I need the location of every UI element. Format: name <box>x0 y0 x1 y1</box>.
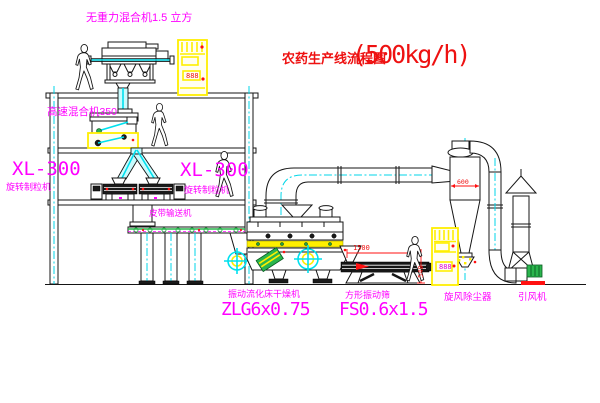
cabinet-1-display: 888 <box>186 73 199 80</box>
page-title-capacity: (500kg/h) <box>352 42 469 67</box>
mixer-drive-guard <box>88 133 138 148</box>
flow-diagram-canvas: 无重力混合机1.5 立方 农药生产线流程图 (500kg/h) 高速混合机350… <box>0 0 600 403</box>
label-dryer-name: 振动流化床干燥机 <box>228 290 300 299</box>
label-high-speed-mixer: 高速混合机350 <box>47 107 117 118</box>
worker-figure-1 <box>76 44 93 89</box>
label-granulator-left-model: XL-300 <box>12 160 81 179</box>
fan-base <box>521 281 545 285</box>
worker-figure-2 <box>152 103 168 146</box>
dimension-cyclone-diameter: 600 <box>457 179 469 186</box>
belt-conveyor <box>128 227 252 284</box>
cabinet-2-display: 888 <box>439 264 452 271</box>
dryer-feet <box>269 270 332 283</box>
duct-reducer <box>432 166 450 183</box>
dimension-screen-length: 1500 <box>353 245 370 252</box>
granulator-right <box>139 178 185 200</box>
control-cabinet-1 <box>178 40 207 95</box>
label-granulator-right-name: 旋转制粒机 <box>184 186 229 195</box>
fan-motor <box>527 265 542 277</box>
conveyor-legs <box>139 233 203 284</box>
label-fan: 引风机 <box>518 293 547 303</box>
control-cabinet-2 <box>432 228 458 285</box>
label-granulator-right-model: XL-300 <box>180 161 249 180</box>
gravity-free-mixer <box>87 42 174 113</box>
label-granulator-left-name: 旋转制粒机 <box>6 183 51 192</box>
dimension-screen-height: 540 <box>418 265 425 278</box>
label-cyclone: 旋风除尘器 <box>444 293 492 303</box>
label-belt-conveyor: 皮带输送机 <box>149 209 192 218</box>
fluid-bed-dryer <box>247 205 352 283</box>
label-dryer-model: ZLG6x0.75 <box>221 301 310 319</box>
label-screen-model: FS0.6x1.5 <box>339 301 428 319</box>
granulator-left <box>91 178 137 200</box>
label-gravity-mixer: 无重力混合机1.5 立方 <box>86 13 192 24</box>
